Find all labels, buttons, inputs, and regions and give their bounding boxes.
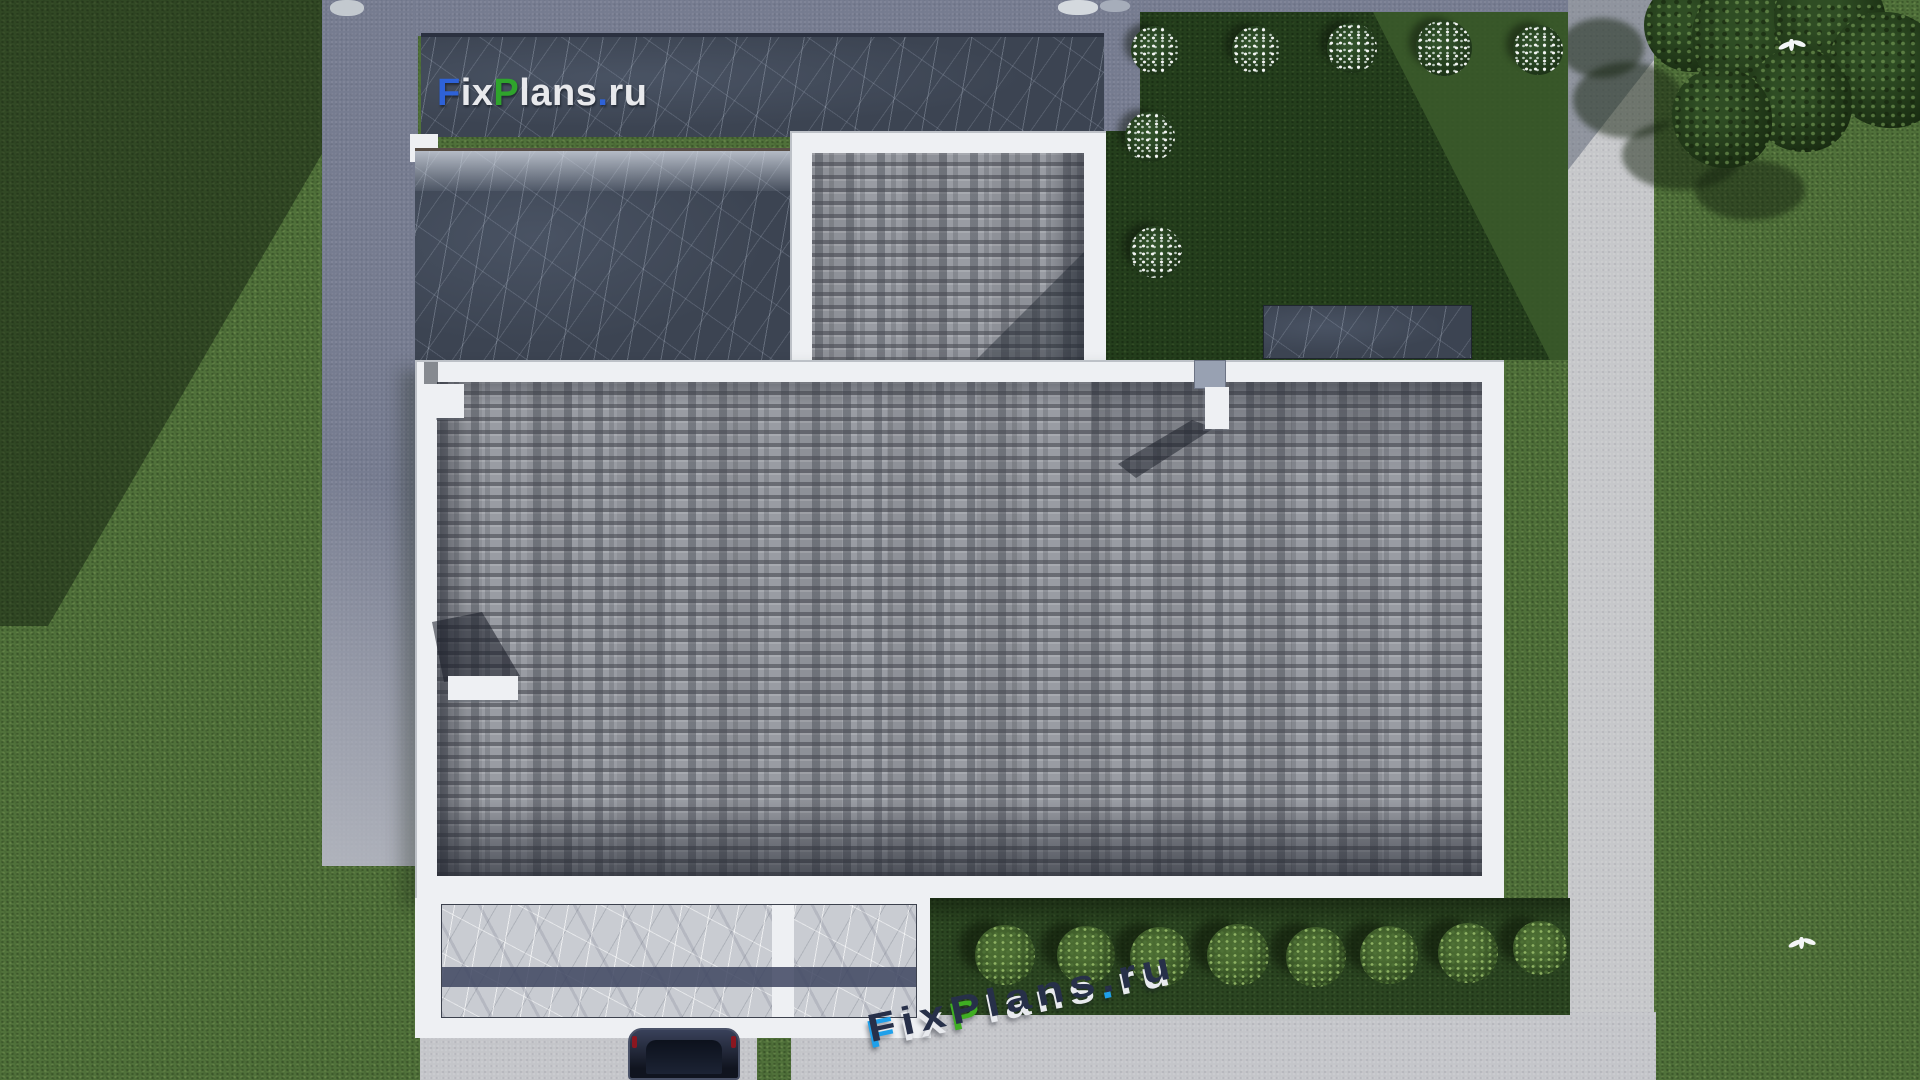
watermark-letter: P bbox=[493, 72, 519, 114]
hedge-bush bbox=[1360, 926, 1418, 984]
flower-bush bbox=[1416, 20, 1472, 76]
flower-bush bbox=[1327, 23, 1377, 73]
hedge-bush bbox=[1438, 923, 1498, 983]
flower-bush bbox=[1131, 26, 1179, 74]
walkway-object bbox=[1058, 0, 1098, 15]
terrace-marble bbox=[441, 904, 917, 1018]
walkway-object bbox=[330, 0, 364, 16]
walkway-object bbox=[1100, 0, 1130, 12]
terrace-frame bbox=[415, 898, 931, 1038]
flower-bush bbox=[1513, 25, 1563, 75]
flower-bush bbox=[1130, 226, 1182, 278]
chimney-left bbox=[448, 676, 518, 700]
tree-shadow bbox=[1695, 160, 1805, 220]
watermark-letter: n bbox=[552, 72, 576, 114]
hedge-bush bbox=[1286, 927, 1346, 987]
canopy-roof-right bbox=[1263, 305, 1472, 359]
flower-bush bbox=[1125, 112, 1175, 162]
car-taillight-right bbox=[731, 1036, 736, 1048]
main-roof-parapet bbox=[415, 360, 1504, 898]
hedge-strip-shade bbox=[930, 898, 1570, 924]
terrace-beam-shadow bbox=[442, 967, 916, 987]
roof-corner-block bbox=[436, 384, 464, 418]
chimney-right bbox=[1205, 387, 1229, 429]
bird bbox=[1788, 934, 1816, 952]
watermark-letter: x bbox=[472, 72, 494, 114]
hedge-bush bbox=[1513, 921, 1567, 975]
flat-roof-light-band bbox=[415, 151, 812, 191]
concrete-pad-light bbox=[322, 0, 418, 866]
roof-notch-shingles bbox=[812, 153, 1084, 382]
watermark-letter: . bbox=[597, 72, 608, 114]
watermark-letter: F bbox=[437, 72, 461, 114]
watermark-logo: FixPlans.ru bbox=[437, 74, 647, 112]
roof-notch-parapet bbox=[790, 131, 1106, 382]
side-walkway bbox=[1104, 0, 1142, 133]
roof-shade-bottom bbox=[437, 801, 1482, 876]
car-taillight-left bbox=[632, 1036, 637, 1048]
corner-block-shadow bbox=[424, 362, 438, 384]
watermark-letter: l bbox=[519, 72, 530, 114]
bird bbox=[1778, 36, 1806, 54]
watermark-letter: s bbox=[576, 72, 598, 114]
flower-bush bbox=[1232, 26, 1280, 74]
watermark-letter: r bbox=[608, 72, 623, 114]
chimney-right-cap bbox=[1194, 360, 1226, 389]
flat-roof-lower bbox=[415, 148, 812, 365]
car-rear-window bbox=[646, 1040, 722, 1074]
aerial-house-render: FixPlans.ru bbox=[0, 0, 1920, 1080]
hedge-bush bbox=[1207, 924, 1269, 986]
watermark-letter: u bbox=[624, 72, 648, 114]
watermark-letter: i bbox=[461, 72, 472, 114]
watermark-letter: a bbox=[530, 72, 552, 114]
terrace-divider bbox=[772, 905, 794, 1017]
terrace-slat-shadows bbox=[442, 905, 916, 1017]
main-roof-shingles bbox=[437, 382, 1482, 876]
car bbox=[628, 1028, 740, 1080]
